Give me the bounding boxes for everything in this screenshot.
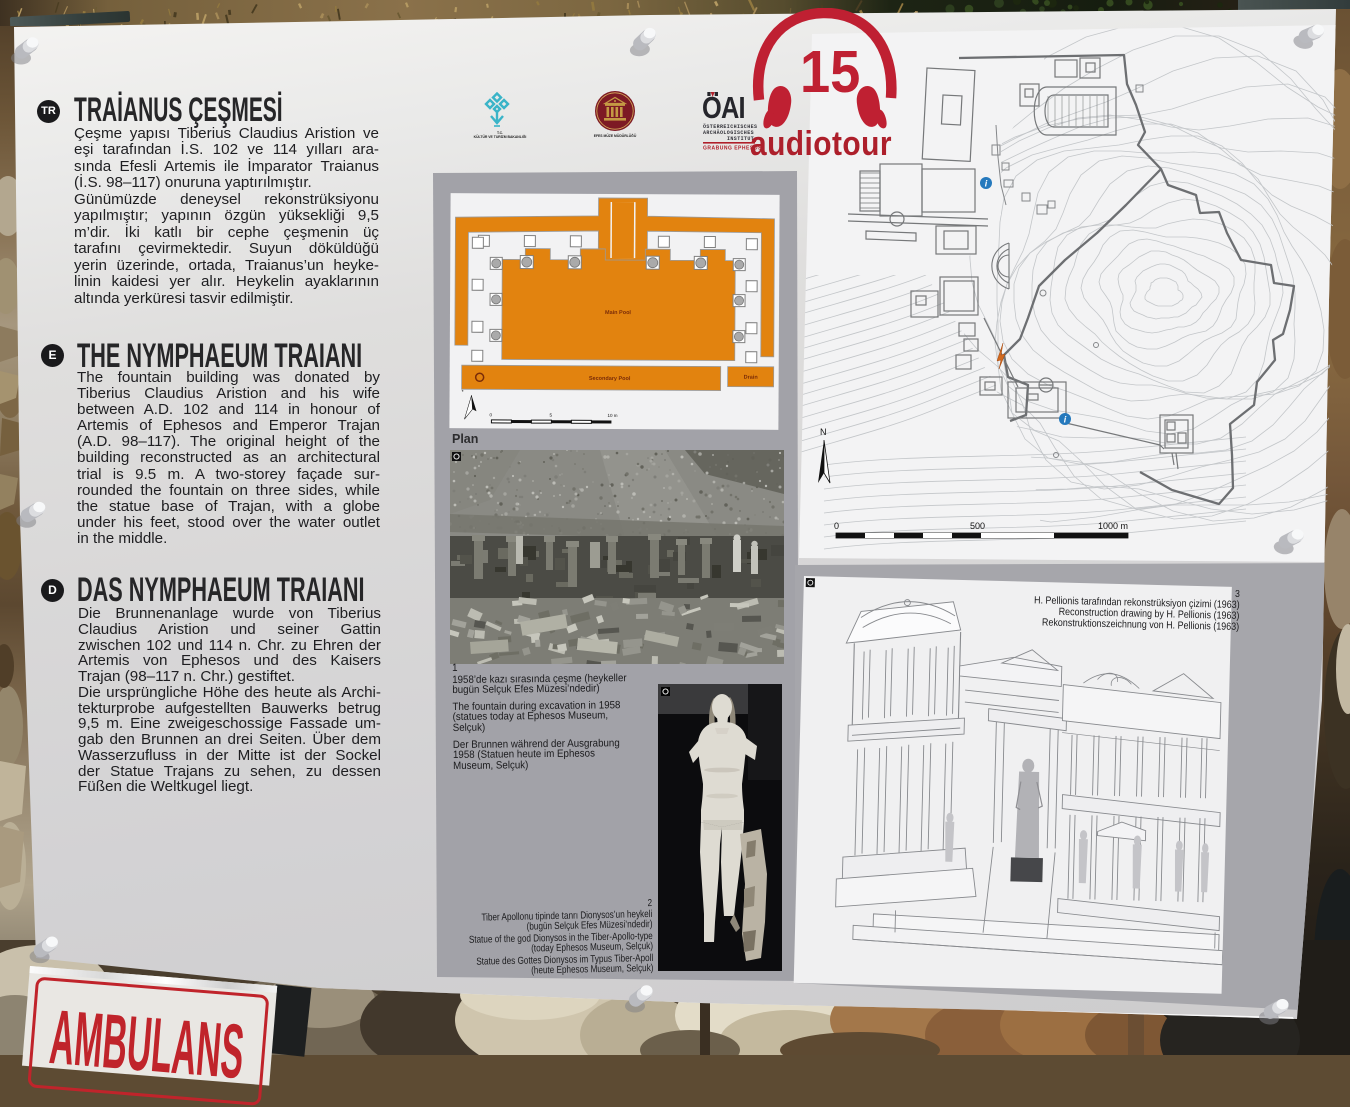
svg-text:Secondary Pool: Secondary Pool xyxy=(589,376,631,382)
svg-text:0: 0 xyxy=(489,412,492,417)
svg-text:500: 500 xyxy=(970,521,985,531)
svg-text:OAI: OAI xyxy=(702,92,745,126)
svg-text:Main Pool: Main Pool xyxy=(605,310,631,316)
svg-text:N: N xyxy=(820,427,827,437)
svg-text:5: 5 xyxy=(549,413,552,418)
svg-text:15: 15 xyxy=(800,40,860,106)
svg-text:0: 0 xyxy=(834,521,839,531)
svg-text:*: * xyxy=(462,389,464,395)
svg-text:1000 m: 1000 m xyxy=(1098,521,1128,531)
svg-text:Drain: Drain xyxy=(744,375,759,381)
svg-text:10 m: 10 m xyxy=(607,413,617,418)
